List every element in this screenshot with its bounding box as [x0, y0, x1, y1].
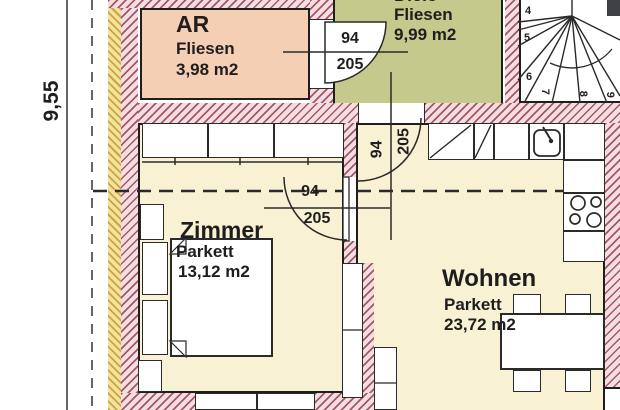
wohnen-cabinet	[374, 347, 397, 410]
wall-right	[605, 123, 620, 387]
stair-step-6: 6	[526, 72, 532, 84]
cabinet-left-1	[140, 204, 164, 240]
nightstand-2	[142, 300, 168, 355]
window-bottom-2	[257, 393, 315, 410]
room-ar-floor: Fliesen	[176, 40, 235, 58]
chair	[565, 294, 591, 315]
stair-step-8: 8	[576, 91, 588, 97]
room-diele: Diele Fliesen 9,99 m2	[333, 0, 503, 105]
nightstand-1	[142, 242, 168, 295]
stairs-newel-block	[607, 0, 620, 16]
door-opening-diele-hall	[358, 103, 425, 123]
floor-plan: Diele Fliesen 9,99 m2 4 5 6 7 8 9	[0, 0, 620, 410]
wall-ar-diele-top	[310, 0, 333, 21]
room-wohnen-name: Wohnen	[442, 266, 536, 291]
stair-step-9: 9	[603, 92, 615, 98]
wall-diele-stairs	[505, 0, 519, 103]
counter-divider	[563, 230, 605, 232]
door-zimmer-height: 205	[296, 211, 338, 228]
door-ar-height: 205	[329, 57, 371, 74]
wardrobe-divider	[273, 123, 275, 158]
door-ar-width: 94	[334, 31, 366, 48]
duct-shaft	[342, 263, 363, 398]
wall-left	[121, 0, 138, 410]
room-diele-area: 9,99 m2	[394, 26, 456, 44]
kitchen-counter-top	[428, 123, 605, 160]
stairs	[519, 0, 620, 103]
room-zimmer-area: 13,12 m2	[178, 263, 250, 281]
door-opening-zimmer	[344, 177, 356, 241]
wall-zimmer-wohnen-lower	[363, 263, 374, 410]
stair-step-7: 7	[538, 89, 550, 95]
wall-band-top-main	[138, 103, 358, 123]
wall-top-left	[108, 0, 333, 8]
wall-zimmer-pier-upper	[344, 123, 356, 177]
counter-divider	[528, 123, 530, 160]
wall-band-top-right	[425, 103, 620, 123]
cabinet-left-2	[138, 360, 162, 392]
door-hall-height: 205	[397, 120, 414, 162]
counter-divider	[563, 192, 605, 194]
stair-step-5: 5	[524, 33, 530, 45]
wall-bottom-left	[121, 393, 195, 410]
counter-divider	[563, 123, 565, 160]
chair	[513, 370, 541, 392]
wall-zimmer-pier-lower	[344, 241, 356, 263]
room-wohnen-area: 23,72 m2	[444, 316, 516, 334]
wall-right-opening	[605, 387, 620, 410]
counter-divider	[473, 123, 475, 160]
room-zimmer-name: Zimmer	[180, 218, 263, 242]
insulation-strip	[108, 0, 121, 410]
room-ar-name: AR	[176, 12, 209, 36]
stair-step-4: 4	[525, 6, 531, 18]
wardrobe-divider	[207, 123, 209, 158]
wardrobe	[142, 123, 344, 158]
chair	[513, 294, 541, 315]
room-wohnen-floor: Parkett	[444, 296, 502, 314]
door-hall-width: 94	[370, 133, 387, 165]
room-zimmer-floor: Parkett	[176, 243, 234, 261]
room-diele-floor: Fliesen	[394, 6, 453, 24]
dimension-vertical-total: 9,55	[41, 70, 63, 132]
chair	[565, 370, 591, 392]
kitchen-counter-right	[563, 160, 605, 262]
counter-divider	[493, 123, 495, 160]
window-bottom-1	[195, 393, 257, 410]
door-zimmer-width: 94	[294, 184, 326, 201]
door-opening-ar-diele	[310, 19, 333, 89]
room-ar-area: 3,98 m2	[176, 61, 238, 79]
